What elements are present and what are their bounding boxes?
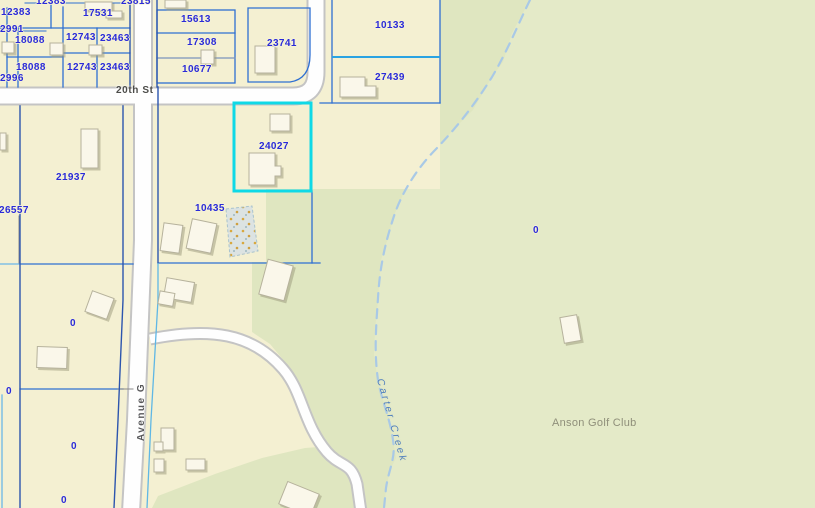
parcel-label: 23463	[100, 34, 130, 44]
street-label-20th-st: 20th St	[116, 86, 154, 96]
parcel-label: 0	[6, 387, 12, 397]
parcel-label: 15613	[181, 15, 211, 25]
parcel-label: 12996	[0, 74, 24, 84]
parcel-label: 10435	[195, 204, 225, 214]
parcel-label: 10677	[182, 65, 212, 75]
street-label-avenue-g: Avenue G	[137, 383, 147, 441]
parcel-label: 23815	[121, 0, 151, 7]
map-layers	[0, 0, 815, 508]
parcel-label: 23741	[267, 39, 297, 49]
parcel-label: 12383	[1, 8, 31, 18]
parcel-label: 0	[71, 442, 77, 452]
parcel-label: 0	[70, 319, 76, 329]
parcel-label: 12991	[0, 25, 24, 35]
parcel-label: 21937	[56, 173, 86, 183]
parcel-label: 18088	[16, 63, 46, 73]
place-label-anson-golf-club: Anson Golf Club	[552, 418, 637, 429]
parcel-label: 0	[533, 226, 539, 236]
parcel-label: 23463	[100, 63, 130, 73]
parcel-label: 10133	[375, 21, 405, 31]
map-canvas[interactable]: 12383 23815 12383 17531 12991 18088 1274…	[0, 0, 815, 508]
parcel-label: 12743	[67, 63, 97, 73]
parcel-label: 17308	[187, 38, 217, 48]
parcel-label: 26557	[0, 206, 29, 216]
parcel-label: 12743	[66, 33, 96, 43]
parcel-label-selected: 24027	[259, 142, 289, 152]
parcel-label: 18088	[15, 36, 45, 46]
parcel-label: 27439	[375, 73, 405, 83]
parcel-label: 0	[61, 496, 67, 506]
parcel-label: 17531	[83, 9, 113, 19]
parcel-label: 12383	[36, 0, 66, 7]
